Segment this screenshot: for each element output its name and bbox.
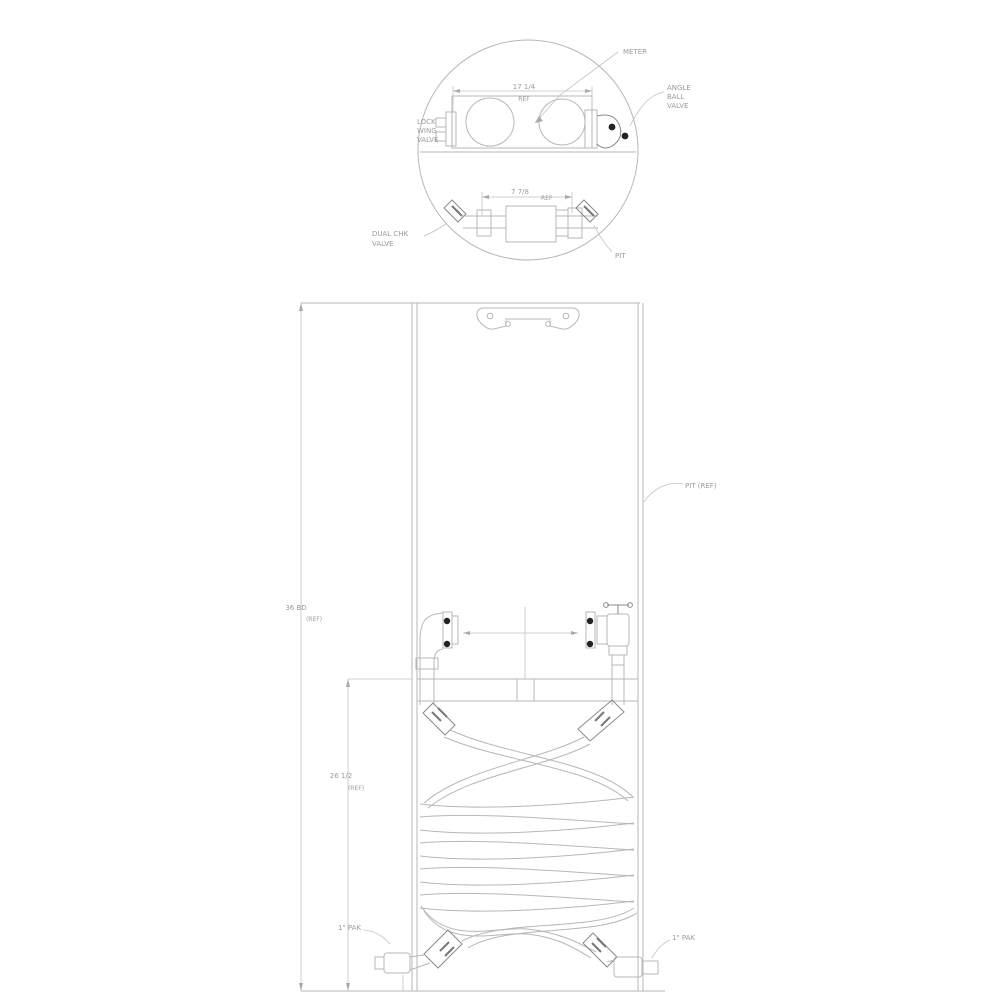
pit-label: PIT — [615, 252, 626, 260]
coil-height-dimension: 26 1/2 (REF) — [330, 679, 412, 991]
width-dim-ref: REF — [518, 96, 530, 103]
left-45-fitting-lower — [424, 930, 462, 968]
technical-drawing-page: 17 1/4 REF METER ANGLE BALL VALVE LOCK W… — [0, 0, 998, 1000]
left-angle-fitting-top — [444, 200, 466, 222]
meter-label: METER — [623, 48, 647, 56]
pit-circle-outline — [418, 40, 638, 260]
height-dim-ref: (REF) — [306, 616, 322, 623]
left-outlet-callout: 1" PAK — [338, 924, 390, 944]
inlet-fitting-top-view — [436, 112, 456, 146]
meter-assembly-top-view: 7 7/8 REF — [444, 188, 598, 242]
width-dimension: 17 1/4 REF — [453, 83, 592, 112]
right-45-fitting-lower — [583, 933, 617, 967]
right-outlet-callout: 1" PAK — [652, 934, 695, 958]
meter-callout: METER — [535, 48, 647, 123]
angle-valve-callout: ANGLE BALL VALVE — [630, 84, 691, 126]
check-label-1: DUAL CHK — [372, 230, 409, 238]
meter-pit-setter-drawing: 17 1/4 REF METER ANGLE BALL VALVE LOCK W… — [0, 0, 998, 1000]
valve-label-1: ANGLE — [667, 84, 691, 92]
valve-label-2: BALL — [667, 93, 684, 101]
angle-ball-valve-elevation — [586, 603, 632, 705]
inlet-label-2: WING — [417, 127, 437, 135]
coil-top-view — [452, 96, 592, 148]
left-outlet-fitting — [375, 953, 430, 991]
inlet-label-3: VALVE — [417, 136, 438, 144]
coil-dim-text: 26 1/2 — [330, 772, 352, 780]
pit-height-dimension: 36 BD (REF) — [285, 303, 322, 991]
pit-ref-label: PIT (REF) — [685, 482, 717, 490]
coil-entry-tubes — [424, 730, 633, 808]
elevation-section: 36 BD (REF) PIT (REF) — [285, 303, 716, 991]
check-label-2: VALVE — [372, 240, 393, 248]
height-dim-text: 36 BD — [285, 604, 306, 612]
inlet-label-1: LOCK — [417, 118, 436, 126]
meter-dim-text: 7 7/8 — [511, 188, 529, 196]
top-view-section: 17 1/4 REF METER ANGLE BALL VALVE LOCK W… — [372, 40, 691, 260]
coil-exit-tubes — [421, 906, 637, 958]
coil-dim-ref: (REF) — [348, 785, 364, 792]
pit-callout: PIT — [594, 225, 626, 260]
meter-dim-ref: REF — [541, 195, 553, 202]
meter-assembly-elevation — [416, 603, 638, 705]
inlet-callout: LOCK WING VALVE — [417, 118, 438, 144]
valve-label-3: VALVE — [667, 102, 688, 110]
support-crossbar — [417, 679, 638, 701]
lid-handle-bracket — [477, 308, 579, 329]
pit-ref-callout: PIT (REF) — [644, 482, 717, 502]
coil-loops — [420, 797, 634, 911]
right-outlet-label: 1" PAK — [672, 934, 695, 942]
meter-body — [506, 206, 556, 242]
left-elbow-fitting — [416, 612, 458, 705]
right-angle-fitting-top — [576, 200, 598, 222]
right-45-fitting-upper — [578, 700, 624, 741]
width-dim-text: 17 1/4 — [513, 83, 536, 91]
check-valve-callout: DUAL CHK VALVE — [372, 223, 447, 248]
left-outlet-label: 1" PAK — [338, 924, 361, 932]
